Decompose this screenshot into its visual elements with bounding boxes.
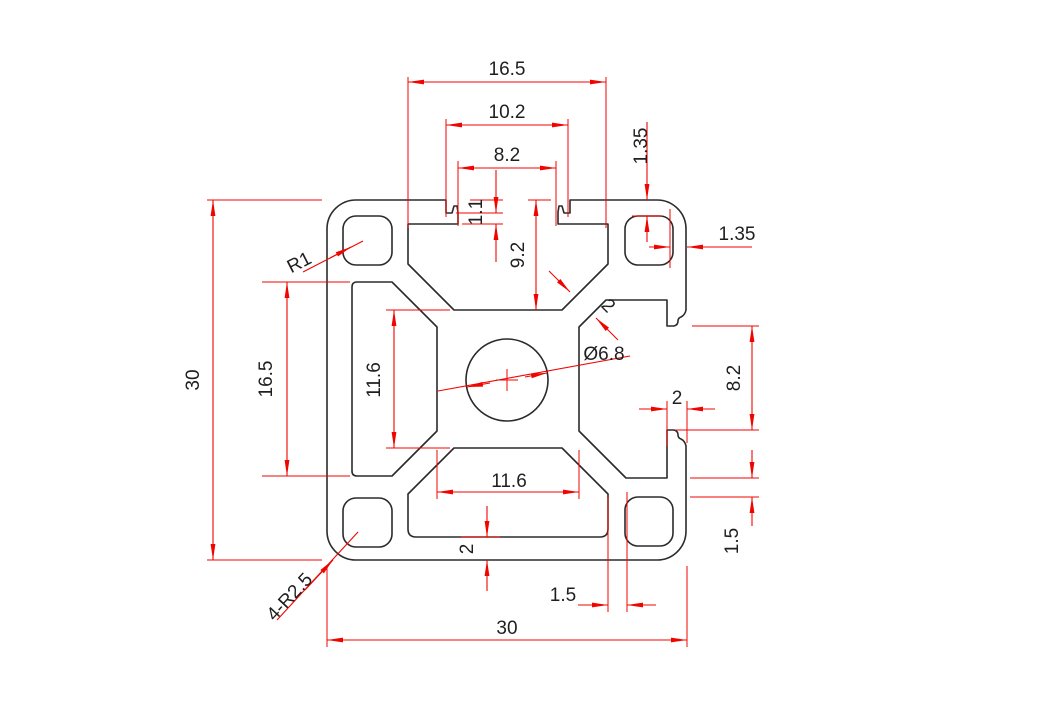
dim-bottom-wall-thickness: 2: [457, 506, 487, 591]
corner-hole-top-left: [343, 216, 392, 265]
dim-corner-hole-side-wall: 1.35: [649, 224, 755, 247]
dim-corner-hole-radius: R1: [284, 241, 363, 278]
drawing-canvas: 16.5 10.2 8.2 1.1 9.2 1.35: [0, 0, 1038, 723]
dim-corner-hole-side-wall-label: 1.35: [719, 224, 756, 245]
dim-boss-wall-bottom-label: 1.5: [550, 585, 576, 606]
dim-hook-wall-thickness: 2: [639, 388, 715, 409]
dimension-lines: 16.5 10.2 8.2 1.1 9.2 1.35: [183, 59, 759, 647]
dim-corner-hole-top-wall: 1.35: [631, 122, 652, 242]
dim-web-thickness: 2: [549, 271, 619, 340]
dim-overall-height: 30: [183, 200, 213, 560]
dim-center-hole-diameter-label: Ø6.8: [583, 344, 624, 365]
corner-hole-bottom-right: [625, 497, 673, 546]
dim-top-lip-step: 1.1: [466, 170, 496, 262]
corner-hole-top-right: [625, 216, 673, 265]
dim-overall-width: 30: [327, 618, 687, 640]
dim-side-cavity-height: 16.5: [256, 282, 287, 476]
dim-top-opening-width: 8.2: [458, 145, 556, 168]
dim-right-slot-opening-label: 8.2: [724, 365, 745, 391]
dim-right-slot-opening: 8.2: [724, 326, 752, 430]
dim-bottom-wall-thickness-label: 2: [457, 544, 478, 555]
dim-corner-hole-radius-label: R1: [284, 248, 315, 278]
dim-top-lip-step-label: 1.1: [466, 199, 487, 225]
dim-web-thickness-label: 2: [597, 295, 619, 317]
extension-lines: [207, 77, 759, 647]
dim-core-width: 11.6: [437, 471, 579, 492]
dim-core-width-label: 11.6: [491, 471, 527, 492]
profile-drawing: 16.5 10.2 8.2 1.1 9.2 1.35: [0, 0, 1038, 723]
dim-top-cavity-width-label: 16.5: [489, 59, 526, 80]
dim-overall-height-label: 30: [183, 369, 204, 390]
dim-boss-wall-right: 1.5: [722, 450, 752, 554]
dim-slot-depth: 9.2: [508, 200, 536, 310]
dim-corner-hole-top-wall-label: 1.35: [631, 128, 652, 165]
dim-core-height-label: 11.6: [364, 362, 385, 398]
dim-hook-wall-thickness-label: 2: [672, 388, 683, 409]
dim-top-step-width: 10.2: [446, 102, 568, 125]
dim-top-opening-width-label: 8.2: [494, 145, 520, 166]
dim-top-cavity-width: 16.5: [408, 59, 606, 82]
dim-top-step-width-label: 10.2: [489, 102, 526, 123]
dim-outer-corner-radius-label: 4-R2.5: [263, 569, 317, 625]
dim-side-cavity-height-label: 16.5: [256, 361, 277, 398]
dim-core-height: 11.6: [364, 310, 394, 448]
dim-outer-corner-radius: 4-R2.5: [263, 532, 358, 625]
dim-overall-width-label: 30: [496, 618, 517, 639]
dim-slot-depth-label: 9.2: [508, 242, 529, 268]
dim-boss-wall-bottom: 1.5: [550, 585, 656, 606]
dim-boss-wall-right-label: 1.5: [722, 528, 743, 554]
